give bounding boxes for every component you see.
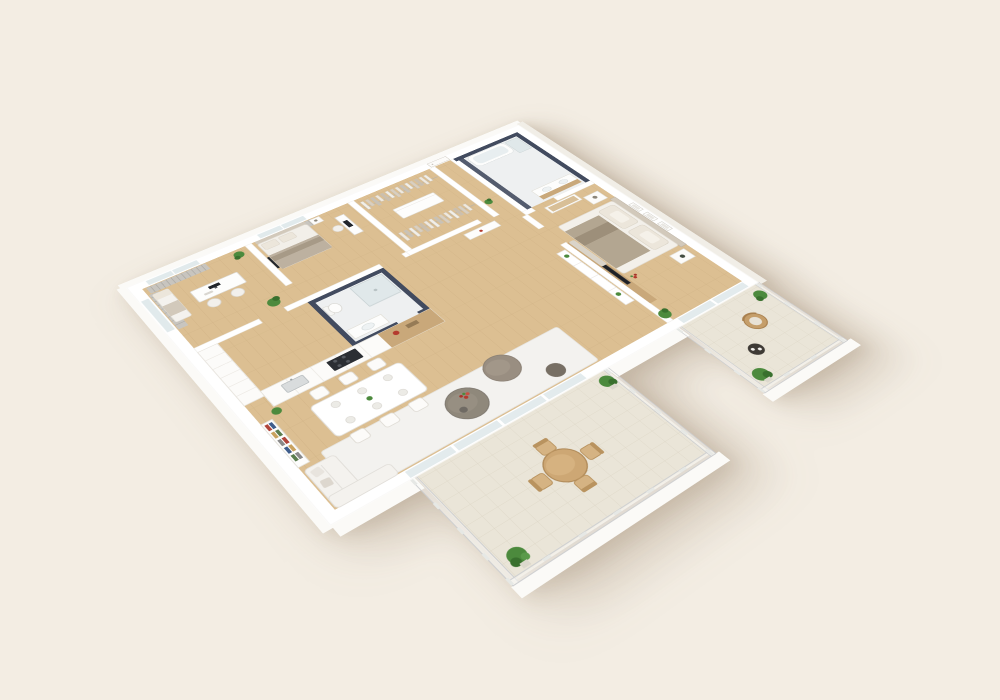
floor-plan-render xyxy=(0,0,1000,700)
apartment-3d-scene xyxy=(114,120,902,678)
